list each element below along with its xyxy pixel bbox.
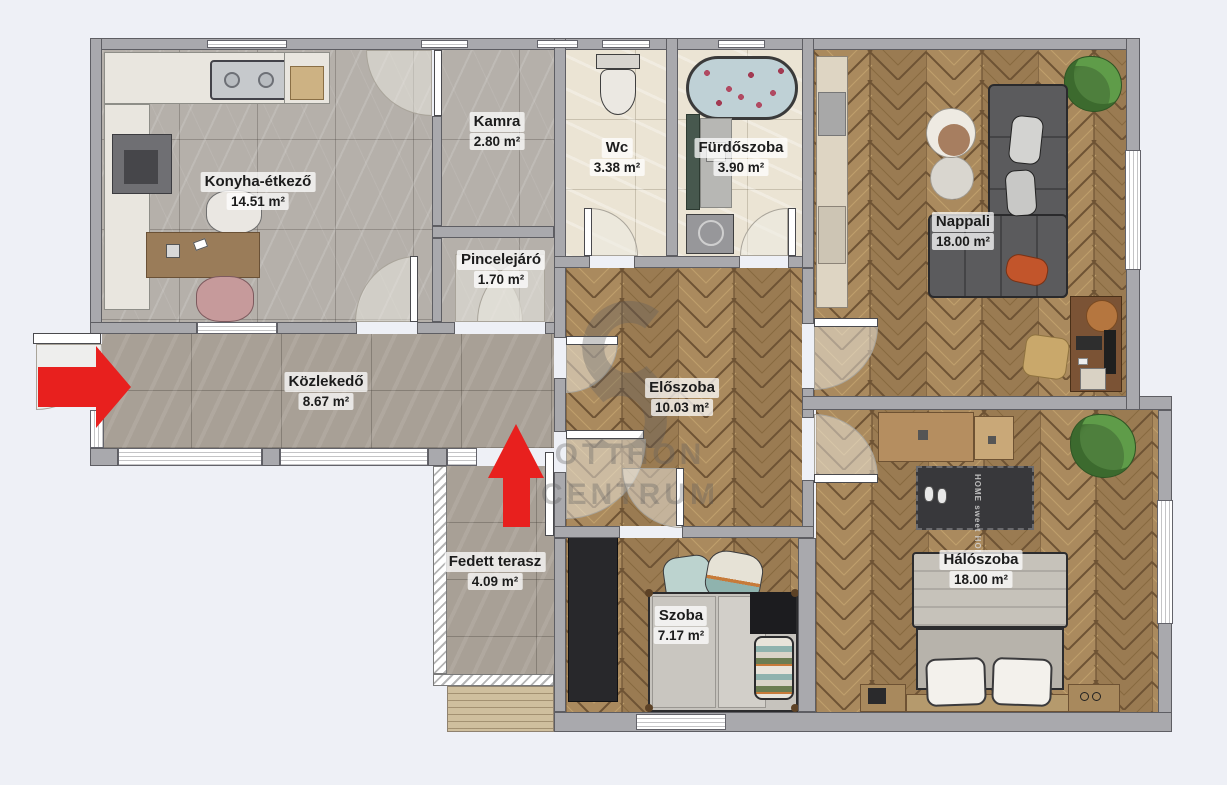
window bbox=[718, 40, 765, 48]
wall-segment bbox=[554, 256, 590, 268]
plant bbox=[1064, 56, 1122, 112]
terrace-hatched-wall bbox=[433, 674, 554, 686]
door-leaf-bathroom bbox=[788, 208, 796, 256]
room-area: 1.70 m² bbox=[474, 271, 529, 289]
wall-segment bbox=[554, 38, 566, 338]
window bbox=[537, 40, 578, 48]
room-area: 2.80 m² bbox=[470, 133, 525, 151]
window bbox=[447, 448, 477, 466]
coffee-table-wood-top bbox=[938, 124, 970, 156]
room-area: 4.09 m² bbox=[468, 573, 523, 591]
pouf bbox=[1021, 333, 1070, 381]
door-leaf-pantry bbox=[434, 50, 442, 116]
striped-pillow bbox=[754, 636, 794, 700]
wall-segment bbox=[432, 238, 442, 322]
table-item bbox=[166, 244, 180, 258]
room-area: 7.17 m² bbox=[654, 627, 709, 645]
wall-segment bbox=[417, 322, 455, 334]
room-area: 3.38 m² bbox=[590, 159, 645, 177]
room-area: 8.67 m² bbox=[299, 393, 354, 411]
wall-segment bbox=[554, 378, 566, 432]
door-leaf-entry bbox=[33, 333, 101, 344]
wall-segment bbox=[90, 38, 102, 334]
window bbox=[280, 448, 428, 466]
wall-segment bbox=[432, 116, 442, 226]
room-label-terrace: Fedett terasz 4.09 m² bbox=[445, 552, 546, 591]
wall-segment bbox=[90, 322, 197, 334]
wall-post bbox=[90, 448, 118, 466]
room-name: Konyha-étkező bbox=[201, 172, 316, 192]
door-leaf-terrace bbox=[545, 452, 554, 536]
room-label-pantry: Kamra 2.80 m² bbox=[470, 112, 525, 151]
room-label-bathroom: Fürdőszoba 3.90 m² bbox=[695, 138, 788, 177]
room-name: Fürdőszoba bbox=[695, 138, 788, 158]
sofa-pillow bbox=[1004, 169, 1037, 217]
window bbox=[118, 448, 262, 466]
keyboard bbox=[1076, 336, 1102, 350]
wall-segment bbox=[634, 256, 740, 268]
window bbox=[636, 714, 726, 730]
tray bbox=[1080, 368, 1106, 390]
cabinet-shelf bbox=[818, 206, 846, 264]
desk-knob bbox=[918, 430, 928, 440]
glasses-icon bbox=[1080, 692, 1089, 701]
nightstand-item bbox=[868, 688, 886, 704]
room-label-bedroom: Hálószoba 18.00 m² bbox=[939, 550, 1022, 589]
cutting-board bbox=[290, 66, 324, 100]
deck-steps bbox=[447, 686, 554, 732]
door-leaf-kitchen bbox=[410, 256, 418, 322]
sink-basin bbox=[258, 72, 274, 88]
room-name: Pincelejáró bbox=[457, 250, 545, 270]
window bbox=[207, 40, 287, 48]
window bbox=[602, 40, 650, 48]
plant bbox=[1070, 414, 1136, 478]
wall-segment bbox=[277, 322, 357, 334]
room-name: Wc bbox=[602, 138, 633, 158]
room-label-corridor: Közlekedő 8.67 m² bbox=[284, 372, 367, 411]
window bbox=[421, 40, 468, 48]
door-leaf-living-room bbox=[814, 318, 878, 327]
kitchen-sink bbox=[210, 60, 290, 100]
door-swing-arc-entry bbox=[36, 344, 102, 410]
room-name: Kamra bbox=[470, 112, 525, 132]
room-area: 14.51 m² bbox=[227, 193, 289, 211]
mouse bbox=[1078, 358, 1088, 365]
wall-segment bbox=[666, 38, 678, 256]
room-area: 18.00 m² bbox=[950, 571, 1012, 589]
door-leaf-hall-lower bbox=[566, 430, 644, 439]
door-leaf-wc bbox=[584, 208, 592, 256]
door-leaf-small-room bbox=[676, 468, 684, 526]
room-name: Fedett terasz bbox=[445, 552, 546, 572]
dining-chair-pink bbox=[196, 276, 254, 322]
room-name: Előszoba bbox=[645, 378, 719, 398]
room-label-kitchen: Konyha-étkező 14.51 m² bbox=[201, 172, 316, 211]
room-area: 18.00 m² bbox=[932, 233, 994, 251]
glasses-icon bbox=[1092, 692, 1101, 701]
room-name: Hálószoba bbox=[939, 550, 1022, 570]
room-name: Közlekedő bbox=[284, 372, 367, 392]
wall-segment bbox=[802, 396, 1172, 410]
bed-pillow bbox=[925, 657, 987, 707]
room-label-living-room: Nappali 18.00 m² bbox=[932, 212, 994, 251]
toilet-bowl bbox=[600, 69, 636, 115]
wall-post bbox=[262, 448, 280, 466]
window bbox=[90, 410, 104, 448]
room-name: Szoba bbox=[655, 606, 707, 626]
desk-stool bbox=[1086, 300, 1118, 332]
toilet-tank bbox=[596, 54, 640, 69]
floor-plan: HOME sweet HOME OTTHON CENTRUM Konyha-ét… bbox=[0, 0, 1227, 785]
room-area: 10.03 m² bbox=[651, 399, 713, 417]
bed-headboard-shelf bbox=[750, 592, 796, 634]
room-name: Nappali bbox=[932, 212, 994, 232]
slipper bbox=[924, 486, 934, 502]
cabinet-appliance bbox=[818, 92, 846, 136]
bed-post bbox=[645, 589, 653, 597]
wall-segment bbox=[432, 226, 554, 238]
sink-basin bbox=[224, 72, 240, 88]
window bbox=[1125, 150, 1141, 270]
wall-segment bbox=[554, 526, 620, 538]
room-label-basement-stairs: Pincelejáró 1.70 m² bbox=[457, 250, 545, 289]
bathtub bbox=[686, 56, 798, 120]
bed-pillow bbox=[991, 657, 1053, 707]
wall-segment bbox=[802, 38, 814, 268]
dresser-knob bbox=[988, 436, 996, 444]
wall-segment bbox=[802, 268, 814, 324]
window bbox=[197, 322, 277, 334]
room-area: 3.90 m² bbox=[714, 159, 769, 177]
wall-segment bbox=[798, 538, 816, 712]
room-label-small-room: Szoba 7.17 m² bbox=[654, 606, 709, 645]
slipper bbox=[937, 488, 947, 504]
sofa-pillow bbox=[1008, 114, 1045, 165]
wall-post bbox=[428, 448, 447, 466]
washer-drum bbox=[698, 220, 724, 246]
door-leaf-hall-upper bbox=[566, 336, 618, 345]
wall-segment bbox=[682, 526, 814, 538]
bed-post bbox=[645, 704, 653, 712]
stove-top bbox=[124, 150, 158, 184]
room-label-wc: Wc 3.38 m² bbox=[590, 138, 645, 177]
door-leaf-bedroom bbox=[814, 474, 878, 483]
window bbox=[1157, 500, 1173, 624]
wardrobe bbox=[568, 532, 618, 702]
room-label-entry-hall: Előszoba 10.03 m² bbox=[645, 378, 719, 417]
coffee-table-small bbox=[930, 156, 974, 200]
wall-segment bbox=[554, 538, 566, 712]
